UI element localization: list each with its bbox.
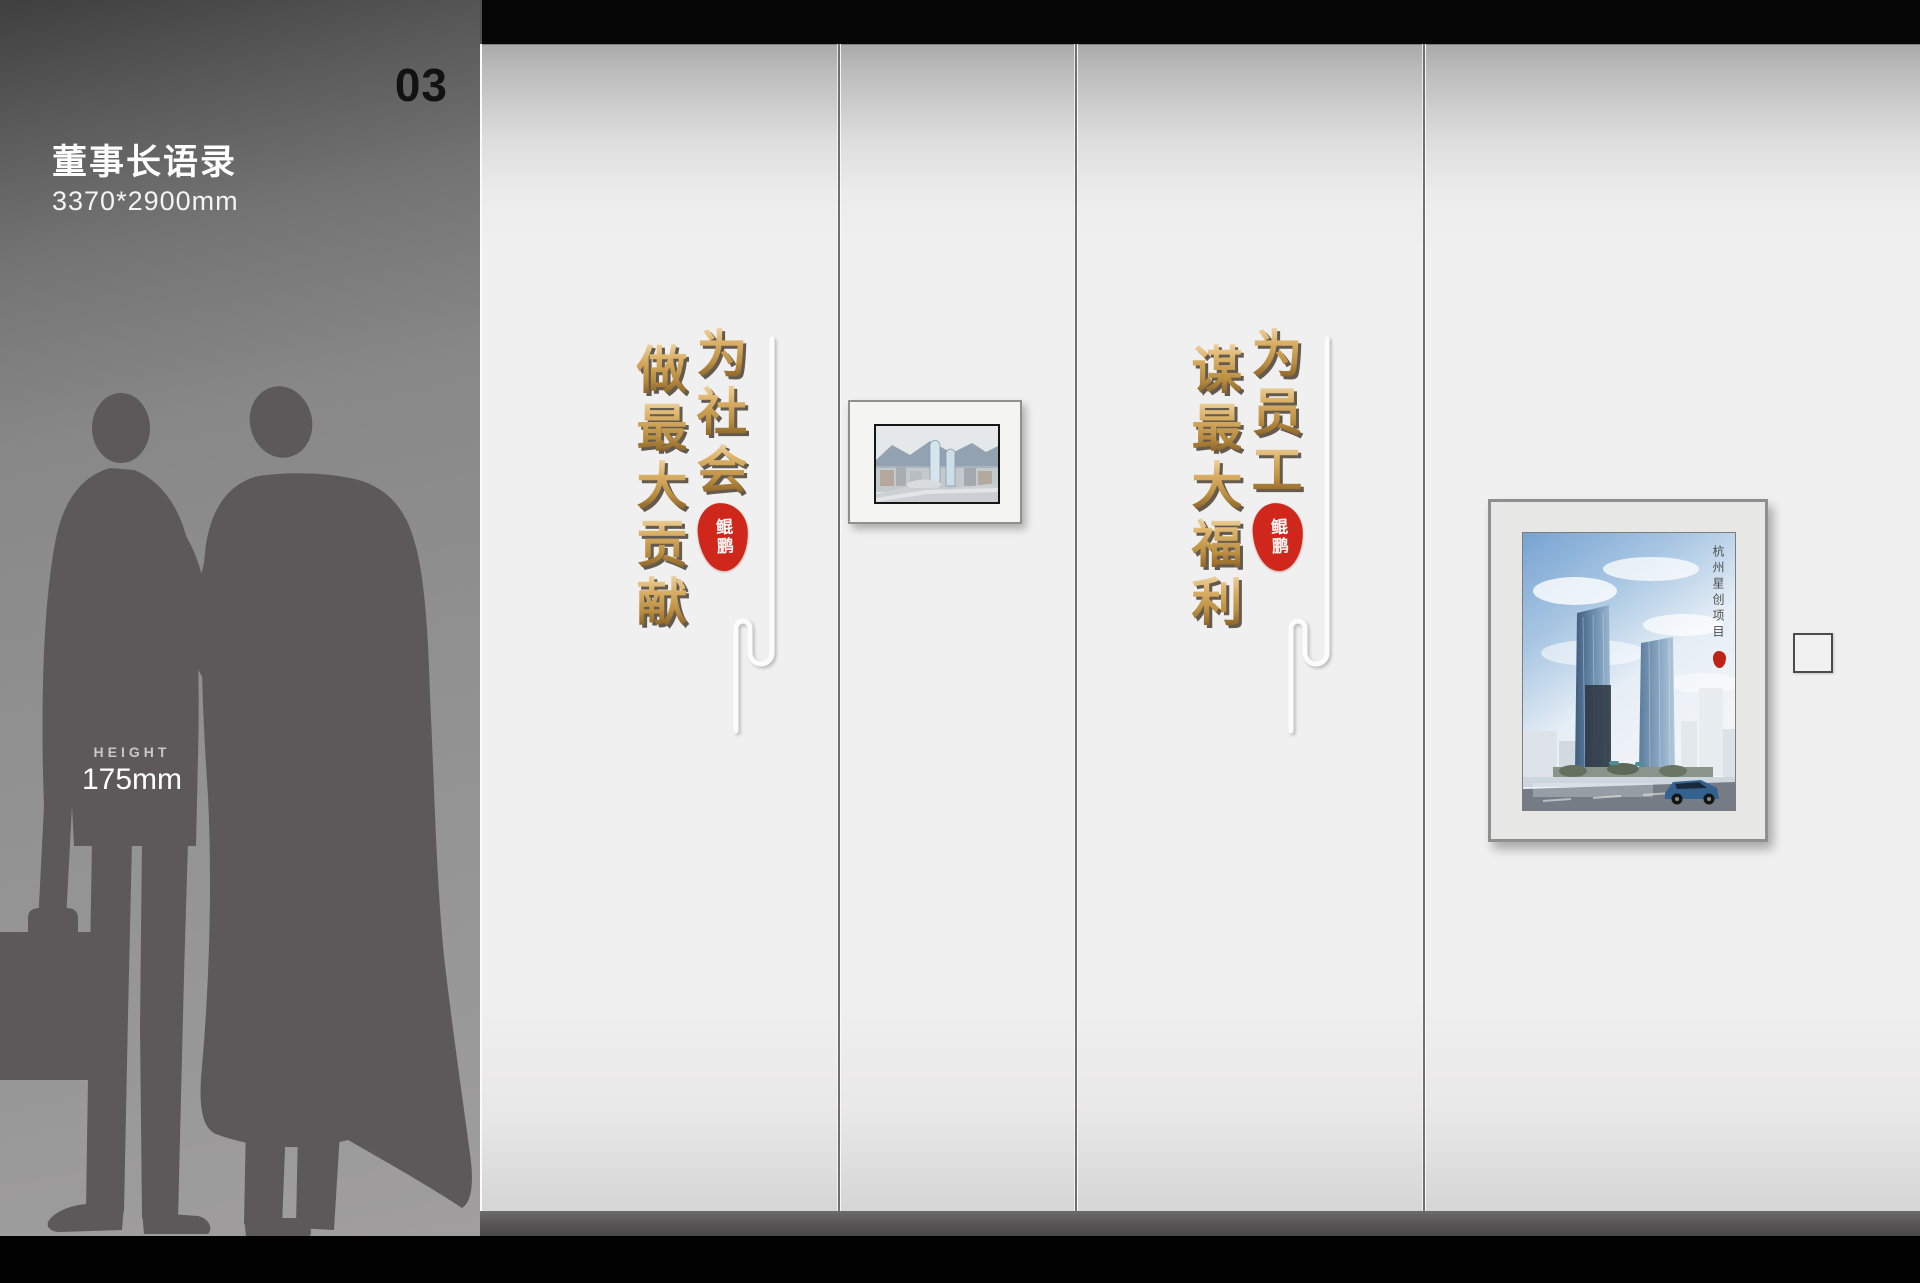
quote1-seal-text: 鲲鹏 <box>714 518 733 557</box>
height-annotation: HEIGHT 175mm <box>62 744 202 797</box>
bottom-black-bar <box>0 1236 1920 1283</box>
framed-artwork-small <box>848 400 1022 524</box>
quote2-column-left: 谋最大福利 <box>1183 343 1241 633</box>
towers-rendering-illustration <box>1523 533 1735 810</box>
height-value: 175mm <box>62 763 202 797</box>
page-number: 03 <box>395 58 448 112</box>
board-title: 董事长语录 <box>52 134 237 185</box>
artwork-caption: 杭州星创项目 <box>1710 545 1727 641</box>
businesspeople-silhouette-illustration <box>0 376 480 1236</box>
quote2-column-right: 为员工 <box>1243 327 1301 501</box>
board-dimensions: 3370*2900mm <box>52 186 239 217</box>
wall-base-bar <box>480 1211 1920 1236</box>
height-label: HEIGHT <box>62 744 202 760</box>
quote2-seal-text: 鲲鹏 <box>1269 518 1288 557</box>
framed-artwork-large: 杭州星创项目 <box>1488 499 1768 842</box>
design-board-page: 03 董事长语录 3370*2900mm <box>0 0 1920 1283</box>
artwork-large-photo: 杭州星创项目 <box>1522 532 1736 811</box>
quote1-column-left: 做最大贡献 <box>628 343 686 633</box>
aerial-city-illustration <box>876 426 998 502</box>
wall-quote-2: 为员工 谋最大福利 鲲鹏 <box>1175 325 1395 745</box>
info-sidebar: 03 董事长语录 3370*2900mm <box>0 0 482 1236</box>
artwork-small-photo <box>874 424 1000 504</box>
wall-quote-1: 为社会 做最大贡献 鲲鹏 <box>620 325 840 745</box>
quote1-column-right: 为社会 <box>688 327 746 501</box>
wall-switch-plate <box>1793 633 1833 673</box>
panel-separator <box>1423 44 1425 1236</box>
panel-separator <box>1075 44 1077 1236</box>
